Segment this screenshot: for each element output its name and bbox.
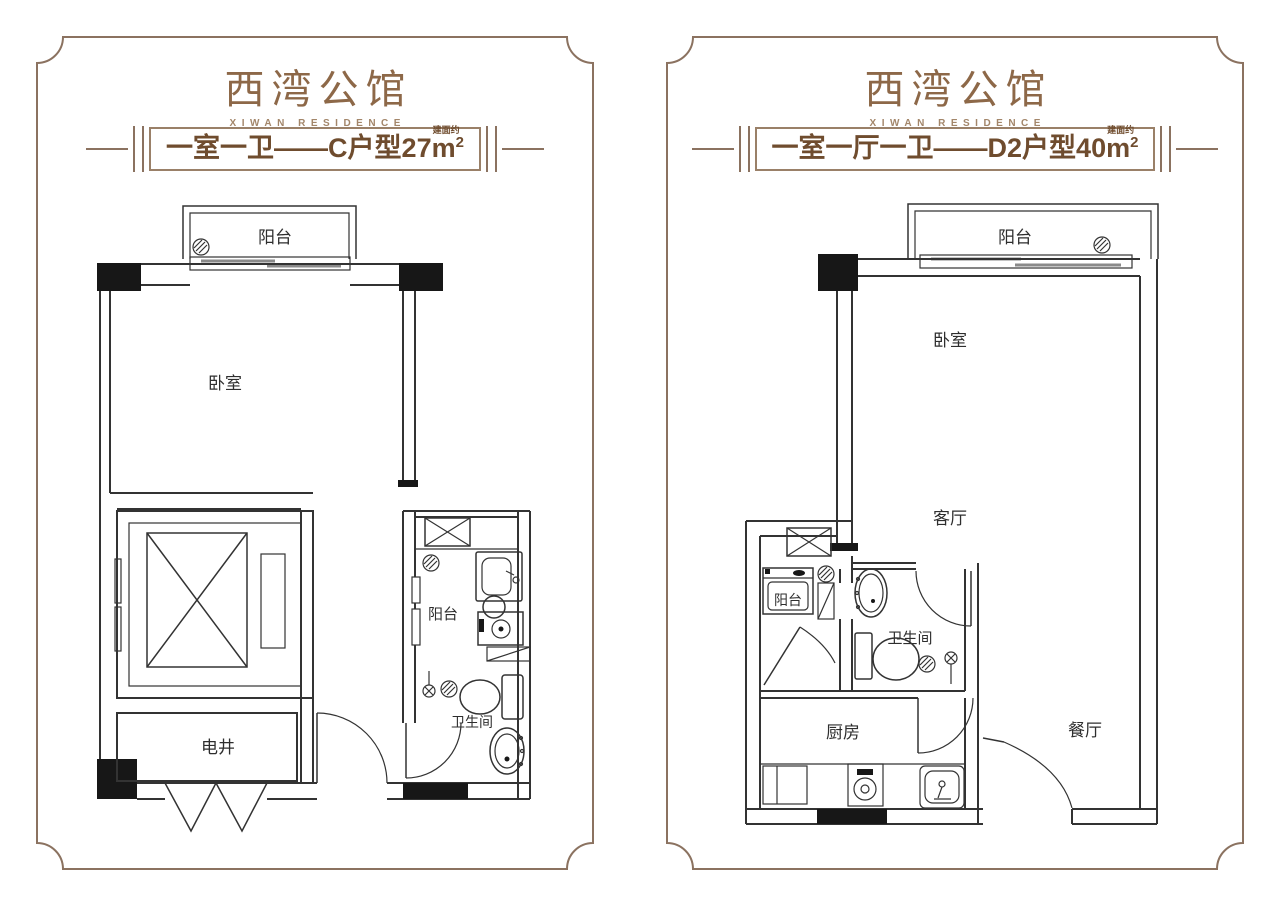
floor-drain-icon: [1094, 237, 1110, 253]
entry-door-swing: [983, 738, 1072, 808]
sink-icon: [476, 552, 522, 601]
plan-panel-c: 西湾公馆 XIWAN RESIDENCE 一室一卫——C户型27建面约m2 阳台: [35, 35, 595, 871]
cabinet: [763, 766, 807, 804]
elevator-shaft: [117, 511, 313, 698]
floorplan-d2: 阳台 卧室 客厅 餐厅: [665, 181, 1245, 871]
brand-title: 西湾公馆: [35, 57, 595, 115]
room-label-living: 客厅: [933, 509, 967, 528]
toilet-icon: [460, 675, 523, 719]
bathroom-door-swing: [406, 723, 461, 778]
floor-drain-icon: [193, 239, 209, 255]
door-panel: [818, 583, 834, 619]
banner-line-right: [502, 148, 544, 150]
room-label-service-balcony: 阳台: [428, 606, 458, 623]
unit-type-label: 一室一卫——C户型: [166, 133, 402, 163]
room-label-bathroom: 卫生间: [451, 714, 493, 730]
corridor-wall: [301, 511, 313, 783]
washing-machine-icon: [478, 596, 523, 645]
basin-icon: [855, 569, 887, 617]
utility-shaft-room: 电井: [117, 713, 297, 781]
bathroom-door-swing: [916, 571, 971, 626]
interior-wall: [760, 691, 965, 698]
banner-line-left: [86, 148, 128, 150]
plan-panel-d2: 西湾公馆 XIWAN RESIDENCE 一室一厅一卫——D2户型40建面约m2…: [665, 35, 1245, 871]
column: [818, 254, 858, 291]
banner-bars-right: [1160, 126, 1171, 172]
unit-banner-c: 一室一卫——C户型27建面约m2: [35, 126, 595, 172]
wall-black-segment: [403, 783, 468, 799]
window: [412, 577, 420, 603]
window: [920, 255, 1132, 268]
floor-drain-icon: [818, 566, 834, 582]
room-label-service-balcony: 阳台: [774, 592, 802, 608]
interior-wall: [852, 563, 916, 569]
brand-block: 西湾公馆 XIWAN RESIDENCE: [665, 57, 1245, 129]
unit-area-value: 27: [402, 133, 432, 163]
unit-banner-d2: 一室一厅一卫——D2户型40建面约m2: [665, 126, 1245, 172]
unit-area-unit: 建面约m2: [1106, 132, 1138, 164]
banner-line-right: [1176, 148, 1218, 150]
banner-bars-left: [739, 126, 750, 172]
wall-black-segment: [817, 809, 887, 824]
flue-icon: [425, 518, 470, 546]
basin-icon: [490, 728, 524, 774]
room-label-balcony: 阳台: [258, 228, 292, 247]
threshold: [487, 647, 530, 661]
unit-banner-box: 一室一卫——C户型27建面约m2: [149, 127, 481, 171]
balcony-top: 阳台: [908, 204, 1158, 259]
room-label-balcony: 阳台: [998, 228, 1032, 247]
room-label-utility-shaft: 电井: [201, 738, 235, 757]
floor-drain-icon: [423, 555, 439, 571]
unit-type-label: 一室一厅一卫——D2户型: [772, 133, 1077, 163]
brand-block: 西湾公馆 XIWAN RESIDENCE: [35, 57, 595, 129]
stove-icon: [848, 764, 883, 806]
area-note: 建面约: [1107, 125, 1134, 136]
room-label-dining: 餐厅: [1068, 721, 1102, 740]
double-door-swing: [165, 783, 267, 831]
room-label-bedroom: 卧室: [933, 331, 967, 350]
column: [399, 263, 443, 291]
floorplan-sheet: 西湾公馆 XIWAN RESIDENCE 一室一卫——C户型27建面约m2 阳台: [0, 0, 1280, 906]
wall-end-cap: [830, 543, 858, 551]
unit-area-unit: 建面约m2: [432, 132, 464, 164]
wall-end-cap: [398, 480, 418, 487]
banner-bars-right: [486, 126, 497, 172]
balcony-top: 阳台: [183, 206, 356, 259]
banner-line-left: [692, 148, 734, 150]
counterweight: [261, 554, 285, 648]
entry-door-swing: [317, 713, 387, 783]
room-label-bedroom: 卧室: [208, 374, 242, 393]
window: [412, 609, 420, 645]
elevator-icon: [147, 533, 247, 667]
floorplan-c: 阳台 卧室: [35, 181, 595, 871]
interior-wall: [110, 493, 313, 509]
unit-area-value: 40: [1076, 133, 1106, 163]
area-note: 建面约: [433, 125, 460, 136]
flue-icon: [787, 528, 831, 556]
laundry-door-swing: [764, 627, 835, 685]
banner-bars-left: [133, 126, 144, 172]
floor-drain-icon: [919, 656, 935, 672]
floor-drain-icon: [441, 681, 457, 697]
interior-wall: [840, 556, 852, 691]
service-block-walls: [403, 511, 530, 723]
valve-icon: [945, 652, 957, 684]
valve-icon: [423, 671, 435, 697]
column: [97, 263, 141, 291]
room-label-kitchen: 厨房: [826, 723, 860, 742]
unit-banner-box: 一室一厅一卫——D2户型40建面约m2: [755, 127, 1156, 171]
sink-icon: [920, 766, 964, 808]
brand-title: 西湾公馆: [665, 57, 1245, 115]
